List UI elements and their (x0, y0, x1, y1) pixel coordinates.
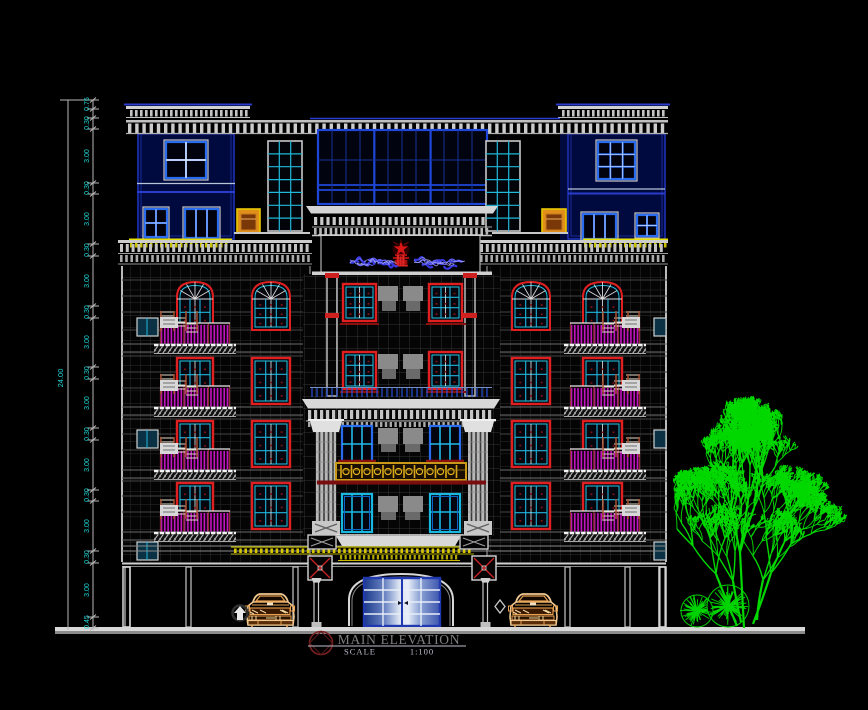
svg-text:3.00: 3.00 (84, 149, 91, 163)
svg-text:0.30: 0.30 (84, 488, 91, 502)
svg-text:0.30: 0.30 (84, 366, 91, 380)
svg-text:0.75: 0.75 (84, 97, 91, 111)
svg-text:3.00: 3.00 (84, 583, 91, 597)
svg-text:0.30: 0.30 (84, 305, 91, 319)
svg-text:0.30: 0.30 (84, 116, 91, 130)
svg-text:0.45: 0.45 (84, 615, 91, 629)
svg-text:1:100: 1:100 (410, 647, 434, 657)
svg-text:3.00: 3.00 (84, 335, 91, 349)
svg-text:0.30: 0.30 (84, 181, 91, 195)
svg-text:3.00: 3.00 (84, 458, 91, 472)
svg-text:3.00: 3.00 (84, 212, 91, 226)
svg-text:3.00: 3.00 (84, 519, 91, 533)
svg-text:MAIN ELEVATION: MAIN ELEVATION (338, 632, 460, 647)
svg-text:SCALE: SCALE (344, 647, 376, 657)
svg-text:3.00: 3.00 (84, 396, 91, 410)
svg-text:3.00: 3.00 (84, 274, 91, 288)
svg-text:0.30: 0.30 (84, 243, 91, 257)
svg-text:0.30: 0.30 (84, 550, 91, 564)
svg-text:0.30: 0.30 (84, 427, 91, 441)
svg-text:24.00: 24.00 (56, 369, 65, 388)
